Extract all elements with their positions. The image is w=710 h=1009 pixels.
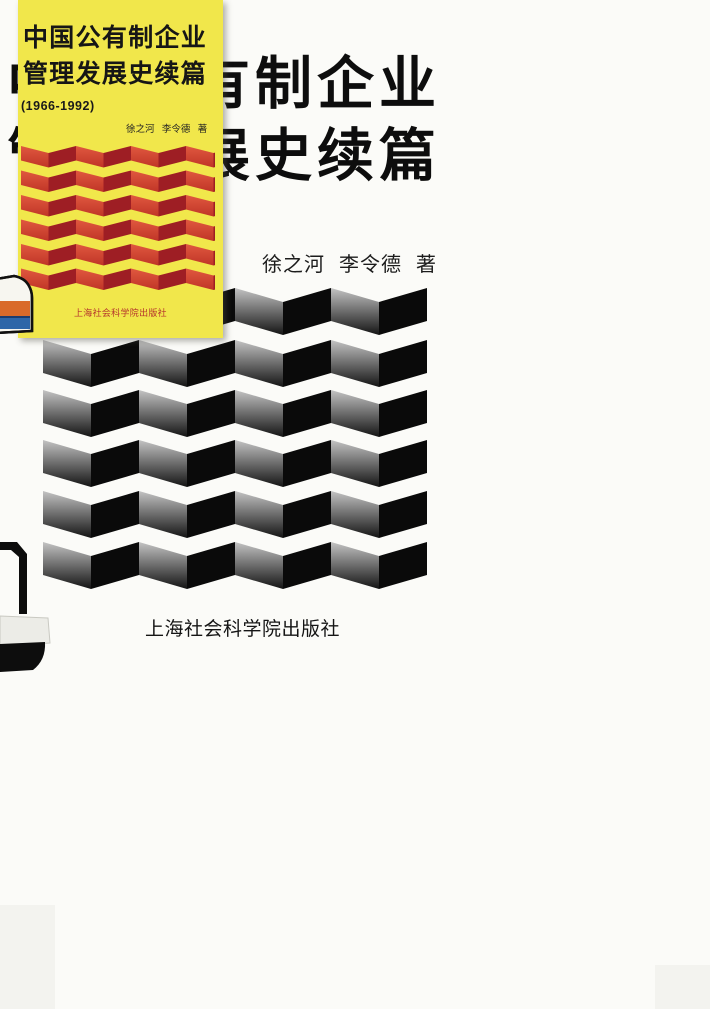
inset-card: 中国公有制企业 管理发展史续篇 (1966-1992) 徐之河 李令德 著 上海…: [18, 0, 223, 338]
scan-smudge-bottom-left: [0, 905, 55, 1009]
book-cover-scan: 中国公有制企业 管理发展史续篇 徐之河 李令德 著 上海社会科学院出版社 中国公…: [0, 0, 710, 1009]
main-publisher: 上海社会科学院出版社: [145, 614, 340, 641]
inset-publisher: 上海社会科学院出版社: [18, 306, 223, 319]
main-authors: 徐之河 李令德 著: [262, 248, 437, 277]
inset-title-line2: 管理发展史续篇: [23, 62, 207, 87]
inset-title-line1: 中国公有制企业: [23, 26, 207, 51]
scan-artifact-bracket: [0, 538, 60, 678]
inset-zigzag-pattern: [21, 145, 215, 295]
photo-object-boat: [0, 272, 38, 338]
scan-smudge-bottom-right: [655, 965, 710, 1009]
inset-authors: 徐之河 李令德 著: [126, 121, 207, 135]
inset-years: (1966-1992): [21, 99, 95, 113]
